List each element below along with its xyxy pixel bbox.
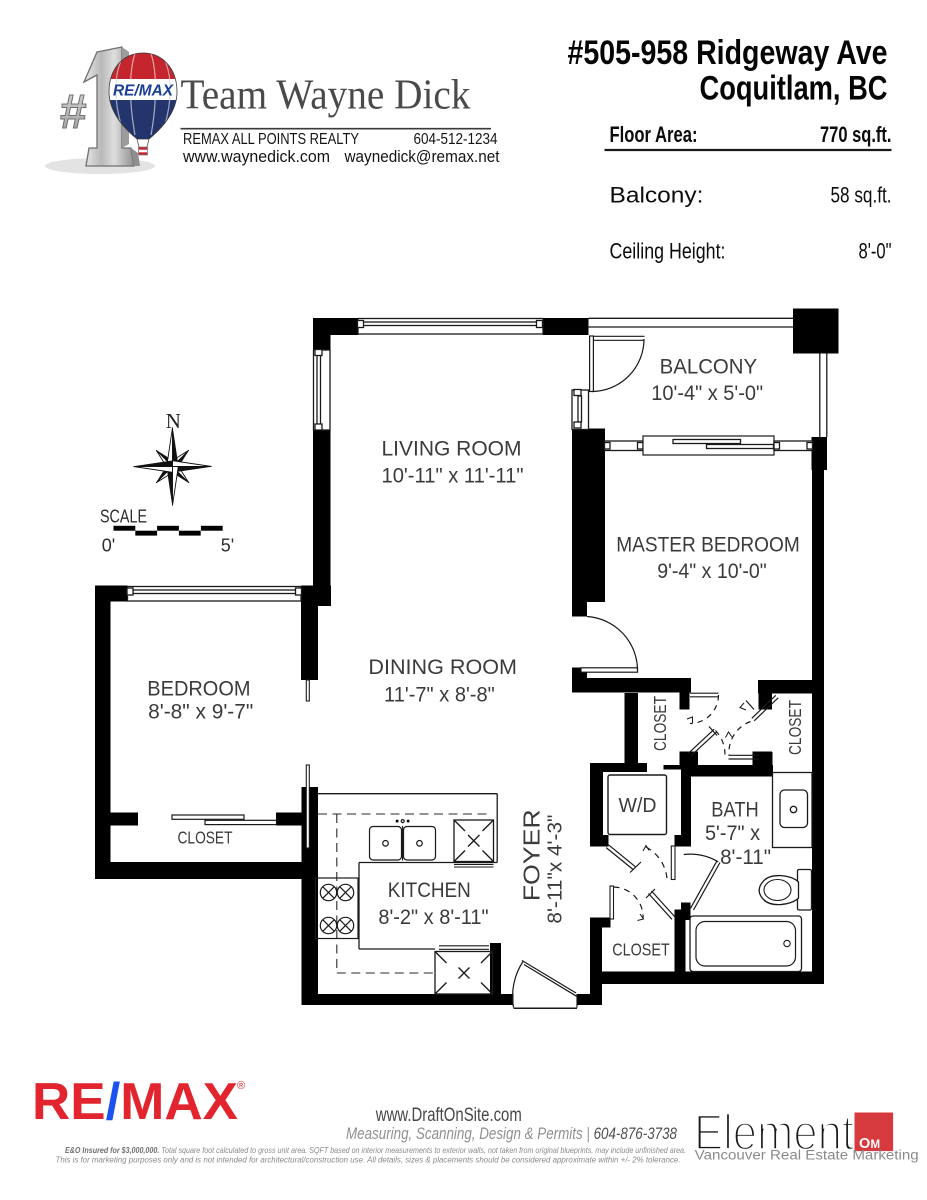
- svg-text:RE/MAX: RE/MAX: [32, 1073, 238, 1131]
- svg-text:8'-11"x 4'-3": 8'-11"x 4'-3": [545, 815, 567, 924]
- svg-text:9'-4" x 10'-0": 9'-4" x 10'-0": [657, 560, 767, 583]
- svg-text:8'-0": 8'-0": [859, 239, 892, 264]
- svg-text:BEDROOM: BEDROOM: [147, 678, 250, 701]
- svg-text:CLOSET: CLOSET: [650, 696, 670, 751]
- svg-text:KITCHEN: KITCHEN: [388, 879, 471, 902]
- svg-text:604-512-1234: 604-512-1234: [414, 131, 498, 148]
- svg-text:10'-4" x 5'-0": 10'-4" x 5'-0": [651, 382, 763, 405]
- svg-text:waynedick@remax.net: waynedick@remax.net: [344, 148, 500, 166]
- svg-text:0': 0': [102, 536, 115, 556]
- svg-text:E&O Insured for $3,000,000. T: E&O Insured for $3,000,000. Total square…: [65, 1146, 686, 1155]
- svg-text:58 sq.ft.: 58 sq.ft.: [831, 182, 892, 207]
- svg-text:SCALE: SCALE: [100, 507, 147, 527]
- svg-text:10'-11" x 11'-11": 10'-11" x 11'-11": [382, 464, 524, 487]
- svg-text:8'-11": 8'-11": [720, 846, 771, 869]
- svg-text:N: N: [166, 409, 181, 433]
- svg-text:LIVING ROOM: LIVING ROOM: [382, 438, 522, 461]
- svg-text:#505-958 Ridgeway Ave: #505-958 Ridgeway Ave: [568, 34, 888, 72]
- svg-text:DINING ROOM: DINING ROOM: [368, 656, 517, 679]
- svg-text:CLOSET: CLOSET: [178, 828, 233, 848]
- svg-text:5': 5': [221, 536, 234, 556]
- svg-text:Measuring, Scanning, Design &: Measuring, Scanning, Design & Permits | …: [346, 1125, 678, 1143]
- svg-text:www.waynedick.com: www.waynedick.com: [182, 148, 330, 166]
- svg-text:FOYER: FOYER: [519, 809, 545, 901]
- svg-text:Team Wayne Dick: Team Wayne Dick: [181, 73, 471, 119]
- svg-text:#: #: [60, 86, 87, 139]
- svg-text:Vancouver Real Estate Marketin: Vancouver Real Estate Marketing: [695, 1147, 919, 1162]
- svg-text:Balcony:: Balcony:: [610, 182, 704, 207]
- svg-text:8'-2" x 8'-11": 8'-2" x 8'-11": [378, 906, 488, 929]
- svg-text:This is for marketing purposes: This is for marketing purposes only and …: [56, 1156, 681, 1165]
- svg-text:MASTER BEDROOM: MASTER BEDROOM: [616, 533, 800, 556]
- svg-text:REMAX ALL POINTS REALTY: REMAX ALL POINTS REALTY: [183, 131, 359, 148]
- svg-text:CLOSET: CLOSET: [612, 939, 670, 959]
- svg-text:8'-8" x 9'-7": 8'-8" x 9'-7": [148, 701, 253, 724]
- svg-text:BATH: BATH: [711, 798, 759, 821]
- svg-text:5'-7" x: 5'-7" x: [705, 822, 760, 845]
- svg-text:Coquitlam, BC: Coquitlam, BC: [700, 69, 888, 107]
- svg-text:Ceiling Height:: Ceiling Height:: [610, 239, 726, 264]
- svg-text:®: ®: [237, 1080, 245, 1092]
- svg-text:W/D: W/D: [619, 795, 657, 817]
- svg-text:Floor Area:: Floor Area:: [610, 122, 698, 147]
- svg-text:11'-7" x 8'-8": 11'-7" x 8'-8": [384, 683, 495, 706]
- svg-text:BALCONY: BALCONY: [660, 355, 758, 378]
- svg-text:www.DraftOnSite.com: www.DraftOnSite.com: [375, 1105, 522, 1126]
- svg-text:CLOSET: CLOSET: [785, 700, 805, 755]
- svg-text:770 sq.ft.: 770 sq.ft.: [820, 122, 892, 147]
- svg-text:RE/MAX: RE/MAX: [113, 83, 174, 100]
